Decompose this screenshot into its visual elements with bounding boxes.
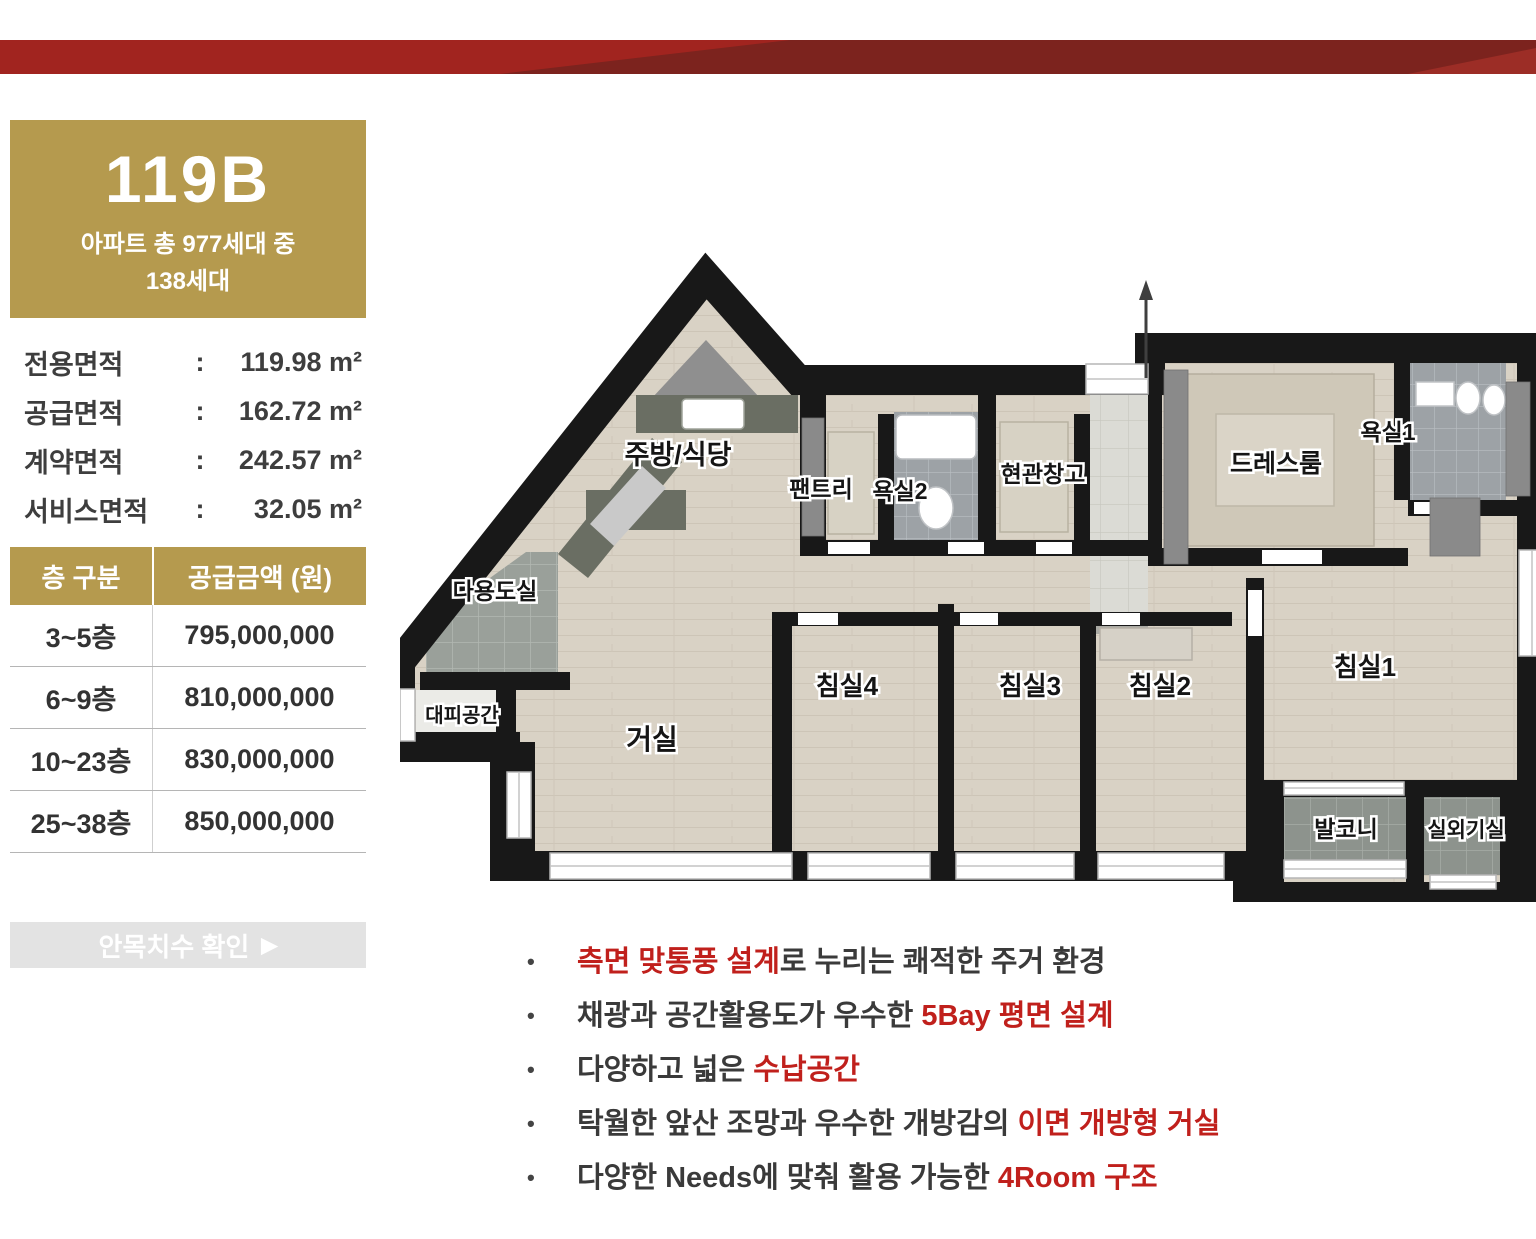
price-row: 25~38층850,000,000 <box>10 791 366 853</box>
room-label-utility-room: 다용도실 <box>453 578 538 604</box>
price-header-floor: 층 구분 <box>10 547 154 605</box>
feature-segment-red: 측면 맞통풍 설계 <box>577 946 780 978</box>
bullet-icon: • <box>527 1104 541 1144</box>
feature-item: •측면 맞통풍 설계로 누리는 쾌적한 주거 환경 <box>527 942 1307 982</box>
room-label-living-room: 거실 <box>626 724 678 755</box>
price-cell-amount: 810,000,000 <box>153 667 366 728</box>
feature-text: 채광과 공간활용도가 우수한 5Bay 평면 설계 <box>577 996 1114 1036</box>
spec-row: 전용면적:119.98 m² <box>10 338 366 387</box>
price-cell-amount: 850,000,000 <box>153 791 366 852</box>
room-label-entry-storage: 현관창고 <box>1001 461 1086 487</box>
spec-row: 서비스면적:32.05 m² <box>10 485 366 534</box>
header-band <box>0 40 1536 74</box>
cta-arrow-icon: ▶ <box>261 935 277 956</box>
price-row: 10~23층830,000,000 <box>10 729 366 791</box>
unit-code: 119B <box>10 120 366 212</box>
unit-subtitle-line2: 138세대 <box>10 263 366 300</box>
room-label-bedroom-4: 침실4 <box>816 671 879 701</box>
bullet-icon: • <box>527 942 541 982</box>
spec-row: 계약면적:242.57 m² <box>10 436 366 485</box>
feature-list: •측면 맞통풍 설계로 누리는 쾌적한 주거 환경•채광과 공간활용도가 우수한… <box>527 942 1307 1212</box>
price-cell-floor: 25~38층 <box>10 791 153 852</box>
spec-list: 전용면적:119.98 m²공급면적:162.72 m²계약면적:242.57 … <box>10 338 366 534</box>
bullet-icon: • <box>527 996 541 1036</box>
spec-label: 서비스면적 <box>24 490 174 529</box>
spec-label: 전용면적 <box>24 343 174 382</box>
room-label-balcony: 발코니 <box>1314 816 1377 842</box>
price-header-amount: 공급금액 (원) <box>154 547 366 605</box>
room-label-bathroom-1: 욕실1 <box>1360 419 1415 445</box>
room-label-bedroom-3: 침실3 <box>999 671 1061 701</box>
spec-colon: : <box>174 347 226 378</box>
price-cell-floor: 3~5층 <box>10 605 153 666</box>
spec-value: 162.72 m² <box>226 396 362 427</box>
feature-segment-red: 5Bay 평면 설계 <box>921 1000 1113 1032</box>
feature-segment-dark: 로 누리는 쾌적한 주거 환경 <box>780 946 1106 978</box>
spec-colon: : <box>174 494 226 525</box>
feature-item: •탁월한 앞산 조망과 우수한 개방감의 이면 개방형 거실 <box>527 1104 1307 1144</box>
feature-segment-red: 4Room 구조 <box>998 1162 1158 1194</box>
spec-value: 242.57 m² <box>226 445 362 476</box>
feature-text: 다양하고 넓은 수납공간 <box>577 1050 860 1090</box>
feature-segment-dark: 다양하고 넓은 <box>577 1054 753 1086</box>
spec-colon: : <box>174 445 226 476</box>
spec-value: 119.98 m² <box>226 347 362 378</box>
room-label-dress-room: 드레스룸 <box>1230 450 1322 478</box>
cta-button[interactable]: 안목치수 확인 ▶ <box>10 922 366 968</box>
unit-subtitle-line1: 아파트 총 977세대 중 <box>10 226 366 263</box>
feature-text: 다양한 Needs에 맞춰 활용 가능한 4Room 구조 <box>577 1158 1158 1198</box>
unit-card: 119B 아파트 총 977세대 중 138세대 <box>10 120 366 318</box>
feature-segment-red: 수납공간 <box>753 1054 860 1086</box>
room-label-kitchen-dining: 주방/식당 <box>625 440 732 470</box>
bullet-icon: • <box>527 1050 541 1090</box>
feature-segment-dark: 탁월한 앞산 조망과 우수한 개방감의 <box>577 1108 1018 1140</box>
price-cell-amount: 830,000,000 <box>153 729 366 790</box>
room-label-bedroom-2: 침실2 <box>1129 671 1191 701</box>
feature-segment-dark: 채광과 공간활용도가 우수한 <box>577 1000 921 1032</box>
spec-label: 공급면적 <box>24 392 174 431</box>
spec-colon: : <box>174 396 226 427</box>
spec-label: 계약면적 <box>24 441 174 480</box>
price-table-header: 층 구분 공급금액 (원) <box>10 547 366 605</box>
price-row: 3~5층795,000,000 <box>10 605 366 667</box>
feature-item: •다양한 Needs에 맞춰 활용 가능한 4Room 구조 <box>527 1158 1307 1198</box>
spec-value: 32.05 m² <box>226 494 362 525</box>
room-label-ac-unit-room: 실외기실 <box>1427 819 1504 842</box>
price-cell-floor: 6~9층 <box>10 667 153 728</box>
floorplan: 주방/식당팬트리욕실2현관창고드레스룸욕실1다용도실대피공간거실침실4침실3침실… <box>400 252 1536 902</box>
room-label-bedroom-1: 침실1 <box>1334 652 1396 682</box>
bullet-icon: • <box>527 1158 541 1198</box>
room-label-pantry: 팬트리 <box>789 476 852 502</box>
price-cell-amount: 795,000,000 <box>153 605 366 666</box>
price-cell-floor: 10~23층 <box>10 729 153 790</box>
feature-segment-dark: 다양한 Needs에 맞춰 활용 가능한 <box>577 1162 998 1194</box>
feature-item: •다양하고 넓은 수납공간 <box>527 1050 1307 1090</box>
feature-text: 탁월한 앞산 조망과 우수한 개방감의 이면 개방형 거실 <box>577 1104 1220 1144</box>
feature-segment-red: 이면 개방형 거실 <box>1018 1108 1221 1140</box>
room-label-evacuation-space: 대피공간 <box>425 704 499 727</box>
price-row: 6~9층810,000,000 <box>10 667 366 729</box>
feature-text: 측면 맞통풍 설계로 누리는 쾌적한 주거 환경 <box>577 942 1106 982</box>
spec-row: 공급면적:162.72 m² <box>10 387 366 436</box>
cta-label: 안목치수 확인 <box>99 927 250 964</box>
room-label-bathroom-2: 욕실2 <box>872 478 927 504</box>
price-table: 층 구분 공급금액 (원) 3~5층795,000,0006~9층810,000… <box>10 547 366 853</box>
feature-item: •채광과 공간활용도가 우수한 5Bay 평면 설계 <box>527 996 1307 1036</box>
